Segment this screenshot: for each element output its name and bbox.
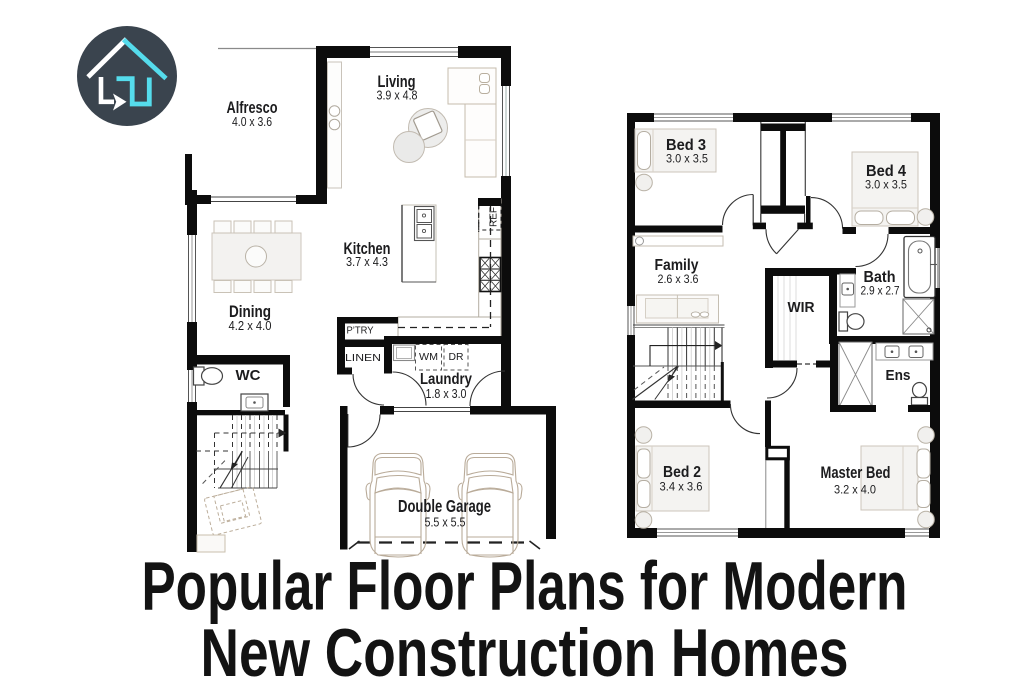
svg-text:4.2 x 4.0: 4.2 x 4.0 [229, 319, 272, 333]
svg-text:2.6 x 3.6: 2.6 x 3.6 [658, 272, 699, 286]
svg-text:Master Bed: Master Bed [821, 464, 891, 482]
svg-text:WIR: WIR [788, 299, 815, 316]
svg-text:DR: DR [449, 351, 464, 363]
svg-text:3.0 x 3.5: 3.0 x 3.5 [865, 178, 907, 192]
svg-text:3.0 x 3.5: 3.0 x 3.5 [666, 152, 708, 166]
svg-text:4.0 x 3.6: 4.0 x 3.6 [232, 115, 272, 129]
svg-text:1.8 x 3.0: 1.8 x 3.0 [426, 387, 467, 401]
svg-text:3.9 x 4.8: 3.9 x 4.8 [377, 89, 418, 103]
svg-text:5.5 x 5.5: 5.5 x 5.5 [425, 515, 466, 530]
svg-text:3.2 x 4.0: 3.2 x 4.0 [834, 483, 876, 497]
svg-text:3.7 x 4.3: 3.7 x 4.3 [346, 255, 388, 269]
svg-text:REF: REF [488, 207, 500, 227]
svg-text:WC: WC [236, 367, 261, 384]
svg-text:WM: WM [419, 351, 438, 363]
svg-text:Ens: Ens [886, 367, 911, 384]
svg-text:Bed 2: Bed 2 [663, 464, 701, 481]
svg-text:3.4 x 3.6: 3.4 x 3.6 [660, 480, 703, 494]
svg-text:Double Garage: Double Garage [398, 496, 491, 516]
svg-text:Laundry: Laundry [420, 371, 472, 388]
svg-text:P’TRY: P’TRY [347, 326, 374, 337]
svg-text:2.9 x 2.7: 2.9 x 2.7 [861, 284, 900, 298]
svg-text:LINEN: LINEN [345, 352, 381, 364]
svg-text:Popular Floor Plans for Modern: Popular Floor Plans for Modern [142, 548, 908, 625]
svg-text:New Construction Homes: New Construction Homes [201, 615, 849, 683]
